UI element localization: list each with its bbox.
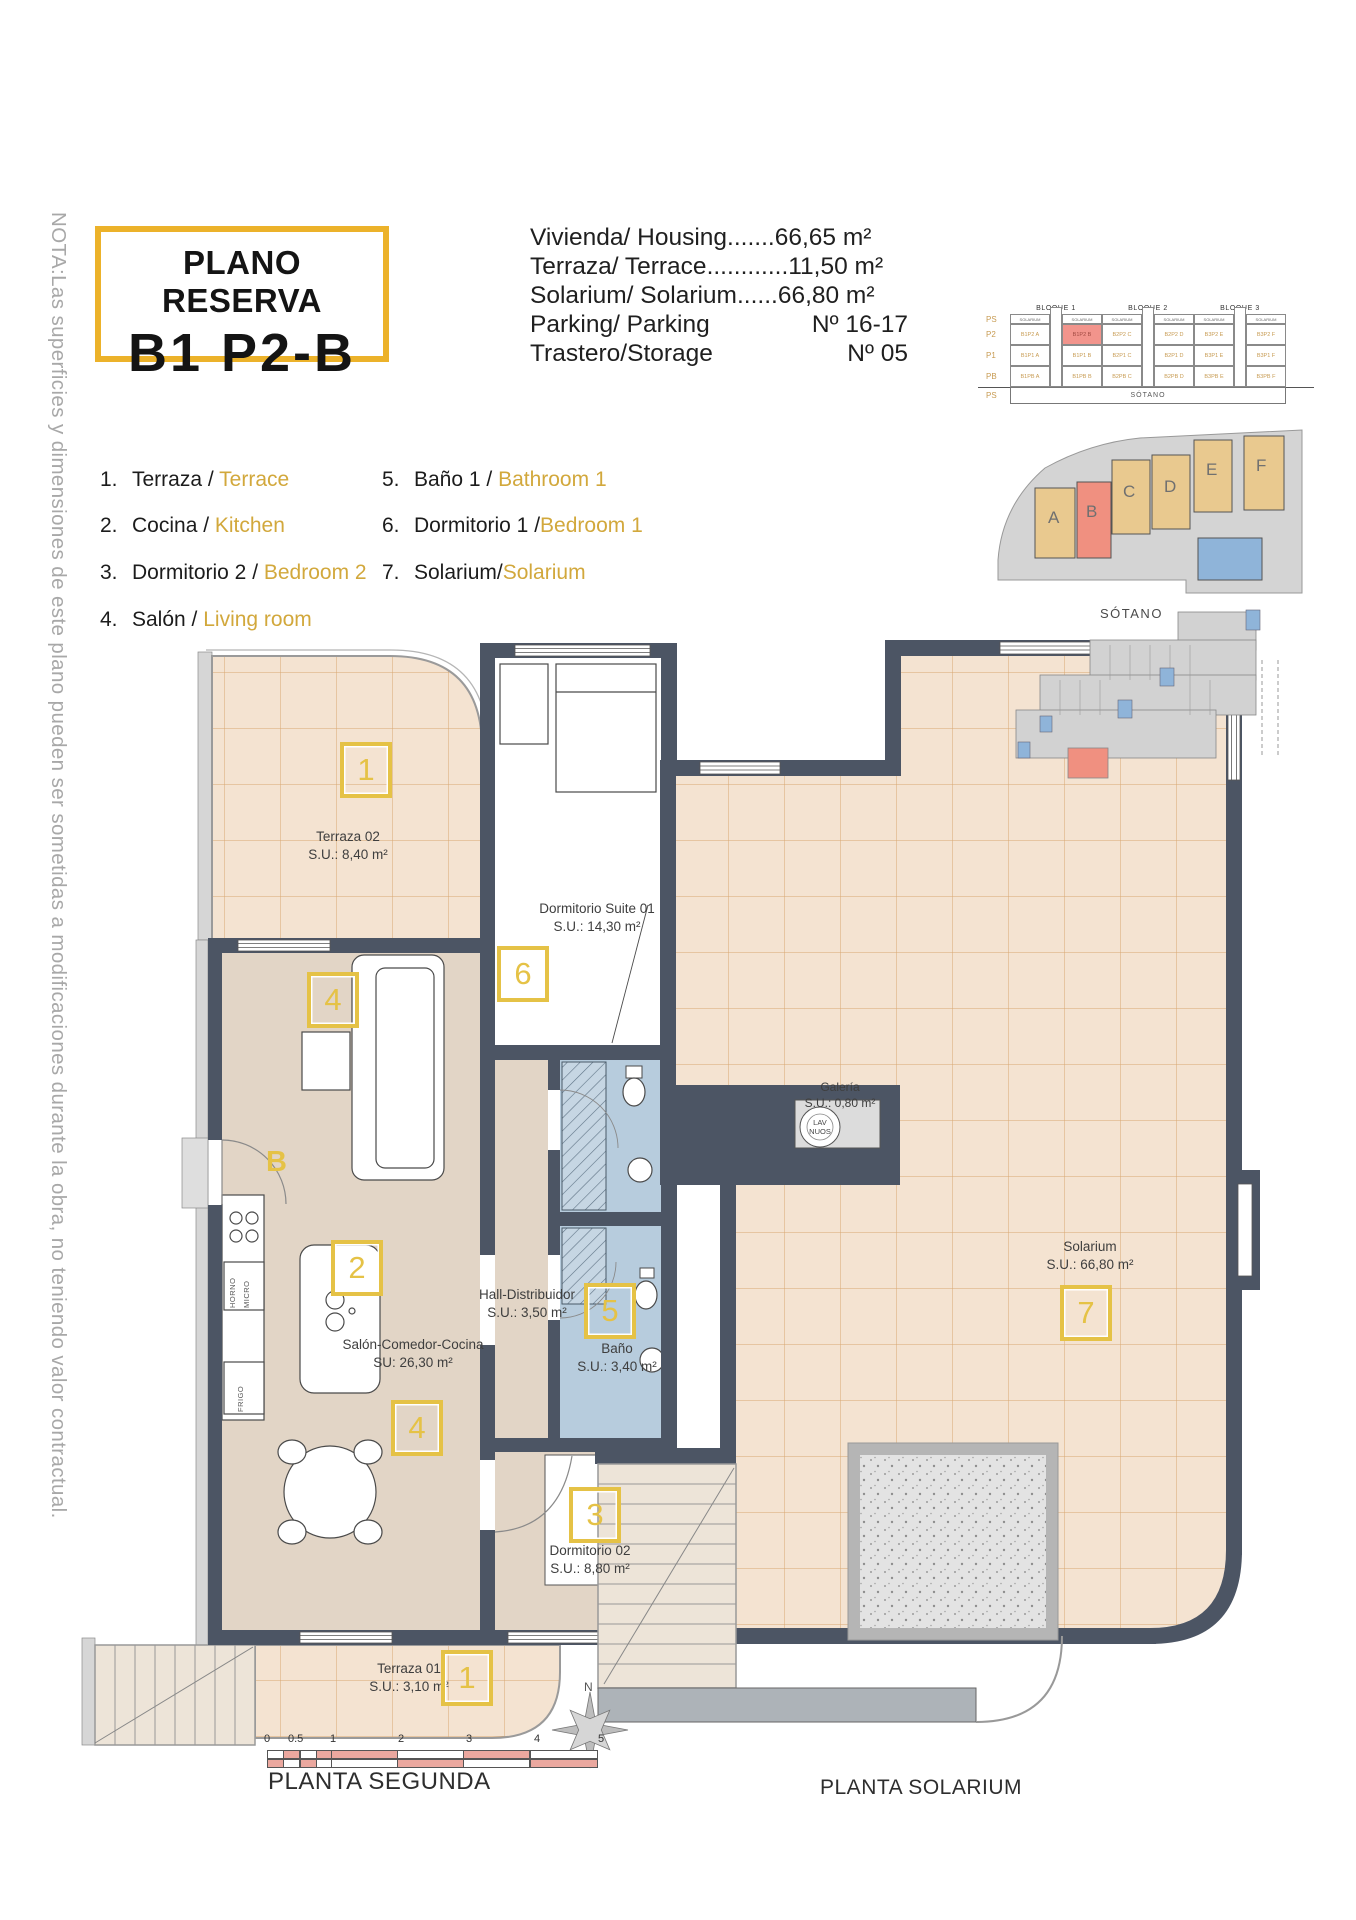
summary-row-solarium: Solarium/ Solarium......66,80 m² xyxy=(530,282,908,310)
summary-value: 11,50 m² xyxy=(788,253,883,280)
legend-es: Terraza / xyxy=(132,468,219,491)
planta-solarium-drawing xyxy=(595,640,1260,1722)
summary-value: 66,65 m² xyxy=(775,224,872,251)
summary-value: 66,80 m² xyxy=(778,282,875,309)
legend-es: Cocina / xyxy=(132,514,215,537)
title-box: PLANO RESERVA B1 P2-B xyxy=(95,226,389,362)
summary-dots: ....... xyxy=(727,224,775,251)
summary-label: Trastero/Storage xyxy=(530,340,713,368)
scale-tick: 5 xyxy=(598,1733,604,1745)
washer-label: LAV NUOS xyxy=(809,1118,831,1136)
label-hall: Hall-Distribuidor S.U.: 3,50 m² xyxy=(479,1286,575,1321)
legend-item-dormitorio2: 3.Dormitorio 2 / Bedroom 2 xyxy=(100,561,367,585)
unit-cell: B3PB F xyxy=(1246,366,1286,387)
stairwell-cell xyxy=(1234,307,1246,387)
room-area: S.U.: 3,40 m² xyxy=(577,1358,657,1376)
room-area: S.U.: 3,10 m² xyxy=(369,1678,449,1696)
legend-item-dormitorio1: 6.Dormitorio 1 /Bedroom 1 xyxy=(382,514,643,538)
marker-dormitorio2: 3 xyxy=(569,1487,621,1543)
room-area: SU: 26,30 m² xyxy=(342,1354,483,1372)
washer-line2: NUOS xyxy=(809,1127,831,1136)
solarium-header: SOLARIUM xyxy=(1246,314,1286,324)
legend-en: Solarium xyxy=(503,561,586,584)
label-salon: Salón-Comedor-Cocina SU: 26,30 m² xyxy=(342,1336,483,1371)
legend-en: Bedroom 1 xyxy=(540,514,643,537)
planter-square xyxy=(848,1443,1058,1640)
scale-tick: 1 xyxy=(330,1733,336,1745)
unit-cell: B1PB B xyxy=(1062,366,1102,387)
unit-cell: B1P1 B xyxy=(1062,345,1102,366)
label-suite: Dormitorio Suite 01 S.U.: 14,30 m² xyxy=(539,900,655,935)
room-name: Salón-Comedor-Cocina xyxy=(342,1336,483,1354)
legend-en: Living room xyxy=(203,608,312,631)
marker-bano: 5 xyxy=(584,1283,636,1339)
room-name: Dormitorio 02 xyxy=(549,1542,630,1560)
pillar-niche xyxy=(1238,1184,1252,1276)
north-label: N xyxy=(584,1680,593,1694)
solarium-header: SOLARIUM xyxy=(1010,314,1050,324)
room-name: Dormitorio Suite 01 xyxy=(539,900,655,918)
plan-title: PLANO RESERVA xyxy=(101,244,383,320)
solarium-header: SOLARIUM xyxy=(1062,314,1102,324)
legend-es: Salón / xyxy=(132,608,203,631)
unit-cell: B2P2 D xyxy=(1154,324,1194,345)
room-name: Baño xyxy=(577,1340,657,1358)
contract-note: NOTA:Las superficies y dimensiones de es… xyxy=(46,212,70,1519)
legend-es: Dormitorio 1 / xyxy=(414,514,540,537)
scale-tick: 3 xyxy=(466,1733,472,1745)
marker-cocina: 2 xyxy=(331,1240,383,1296)
stairwell-cell xyxy=(1050,307,1062,387)
block-index-table: BLOQUE 1 BLOQUE 2 BLOQUE 3 PS P2 P1 PB P… xyxy=(986,300,1286,404)
legend-item-salon: 4.Salón / Living room xyxy=(100,608,312,632)
scale-bar-row xyxy=(268,1759,598,1768)
summary-label: Solarium/ Solarium xyxy=(530,282,737,309)
unit-cell: B2P1 D xyxy=(1154,345,1194,366)
room-area: S.U.: 8,80 m² xyxy=(549,1560,630,1578)
room-name: Galería xyxy=(805,1080,876,1096)
summary-label: Vivienda/ Housing xyxy=(530,224,727,251)
legend-item-cocina: 2.Cocina / Kitchen xyxy=(100,514,285,538)
legend-es: Baño 1 / xyxy=(414,468,498,491)
horno-label: HORNO xyxy=(228,1266,237,1308)
summary-row-housing: Vivienda/ Housing.......66,65 m² xyxy=(530,224,908,252)
label-dorm02: Dormitorio 02 S.U.: 8,80 m² xyxy=(549,1542,630,1577)
summary-value: Nº 05 xyxy=(847,340,908,368)
legend-es: Solarium/ xyxy=(414,561,503,584)
room-area: S.U.: 3,50 m² xyxy=(479,1304,575,1322)
scale-tick: 0.5 xyxy=(288,1733,303,1745)
marker-salon-lower: 4 xyxy=(391,1400,443,1456)
legend-es: Dormitorio 2 / xyxy=(132,561,264,584)
row-label-ps-bottom: PS xyxy=(986,391,1010,400)
room-name: Terraza 01 xyxy=(369,1660,449,1678)
scale-t极ick: 2 xyxy=(398,1733,404,1745)
legend-num: 3. xyxy=(100,561,132,585)
scale-tick: 0 xyxy=(264,1733,270,1745)
unit-cell: B2P1 C xyxy=(1102,345,1142,366)
unit-cell: B3P2 E xyxy=(1194,324,1234,345)
marker-terraza01: 1 xyxy=(441,1650,493,1706)
washer-line1: LAV xyxy=(809,1118,831,1127)
scale-tick: 4 xyxy=(534,1733,540,1745)
stairs-plan2 xyxy=(95,1645,255,1745)
solarium-header: SOLARIUM xyxy=(1154,314,1194,324)
unit-cell: B3P1 F xyxy=(1246,345,1286,366)
marker-dormitorio1: 6 xyxy=(497,946,549,1002)
marker-salon-upper: 4 xyxy=(307,972,359,1028)
unit-cell: B3P2 F xyxy=(1246,324,1286,345)
sotano-map-title: SÓTANO xyxy=(1100,606,1163,621)
site-unit-b-highlighted: B xyxy=(1086,502,1097,522)
unit-cell: B2PB C xyxy=(1102,366,1142,387)
legend-item-bano: 5.Baño 1 / Bathroom 1 xyxy=(382,468,607,492)
unit-cell: B1PB A xyxy=(1010,366,1050,387)
label-galeria: Galería S.U.: 0,80 m² xyxy=(805,1080,876,1111)
legend-en: Kitchen xyxy=(215,514,285,537)
site-unit-d: D xyxy=(1164,477,1176,497)
room-area: S.U.: 8,40 m² xyxy=(308,846,388,864)
room-name: Terraza 02 xyxy=(308,828,388,846)
room-area: S.U.: 0,80 m² xyxy=(805,1096,876,1112)
floorplan-sheet: NOTA:Las superficies y dimensiones de es… xyxy=(0,0,1356,1920)
solarium-header: SOLARIUM xyxy=(1102,314,1142,324)
solarium-header: SOLARIUM xyxy=(1194,314,1234,324)
summary-row-parking: Parking/ ParkingNº 16-17 xyxy=(530,311,908,339)
unit-cell-highlighted: B1P2 B xyxy=(1062,324,1102,345)
legend-en: Bedroom 2 xyxy=(264,561,367,584)
site-unit-c: C xyxy=(1123,482,1135,502)
legend-en: Bathroom 1 xyxy=(498,468,607,491)
site-unit-e: E xyxy=(1206,460,1217,480)
legend-num: 6. xyxy=(382,514,414,538)
legend-num: 1. xyxy=(100,468,132,492)
site-unit-a: A xyxy=(1048,508,1059,528)
unit-cell: B1P1 A xyxy=(1010,345,1050,366)
unit-code: B1 P2-B xyxy=(101,322,383,384)
label-terraza02: Terraza 02 S.U.: 8,40 m² xyxy=(308,828,388,863)
marker-solarium: 7 xyxy=(1060,1285,1112,1341)
legend-num: 7. xyxy=(382,561,414,585)
unit-cell: B3P1 E xyxy=(1194,345,1234,366)
caption-planta-segunda: PLANTA SEGUNDA xyxy=(268,1768,491,1796)
room-area: S.U.: 66,80 m² xyxy=(1046,1256,1133,1274)
summary-row-terrace: Terraza/ Terrace............11,50 m² xyxy=(530,253,908,281)
stairwell-cell xyxy=(1142,307,1154,387)
marker-terraza02: 1 xyxy=(340,742,392,798)
unit-cell: B2P2 C xyxy=(1102,324,1142,345)
entrance-door-label: B xyxy=(266,1146,287,1179)
label-terraza01: Terraza 01 S.U.: 3,10 m² xyxy=(369,1660,449,1695)
legend-num: 5. xyxy=(382,468,414,492)
row-label-ps-top: PS xyxy=(986,315,1010,324)
summary-dots: ............ xyxy=(707,253,789,280)
row-label-p2: P2 xyxy=(986,330,1010,339)
label-solarium: Solarium S.U.: 66,80 m² xyxy=(1046,1238,1133,1273)
unit-cell: B1P2 A xyxy=(1010,324,1050,345)
site-unit-f: F xyxy=(1256,456,1266,476)
summary-row-storage: Trastero/StorageNº 05 xyxy=(530,340,908,368)
summary-value: Nº 16-17 xyxy=(812,311,908,339)
legend-num: 4. xyxy=(100,608,132,632)
summary-label: Parking/ Parking xyxy=(530,311,710,339)
room-name: Solarium xyxy=(1046,1238,1133,1256)
site-minimap xyxy=(998,430,1302,593)
legend-item-solarium: 7.Solarium/Solarium xyxy=(382,561,586,585)
sotano-row: SÓTANO xyxy=(1010,387,1286,404)
summary-dots: ...... xyxy=(737,282,778,309)
frigo-label: FRIGO xyxy=(236,1368,245,1412)
row-label-p1: P1 xyxy=(986,351,1010,360)
legend-en: Terrace xyxy=(219,468,289,491)
unit-cell: B2PB D xyxy=(1154,366,1194,387)
micro-label: MICRO xyxy=(242,1266,251,1308)
caption-planta-solarium: PLANTA SOLARIUM xyxy=(820,1776,1022,1800)
room-area: S.U.: 14,30 m² xyxy=(539,918,655,936)
room-name: Hall-Distribuidor xyxy=(479,1286,575,1304)
scale-bar-row xyxy=(268,1750,598,1759)
summary-label: Terraza/ Terrace xyxy=(530,253,707,280)
legend-num: 2. xyxy=(100,514,132,538)
unit-cell: B3PB E xyxy=(1194,366,1234,387)
planta-segunda-drawing xyxy=(82,643,677,1745)
legend-item-terraza: 1.Terraza / Terrace xyxy=(100,468,289,492)
scale-bar xyxy=(268,1750,598,1768)
row-label-pb: PB xyxy=(986,372,1010,381)
label-bano: Baño S.U.: 3,40 m² xyxy=(577,1340,657,1375)
